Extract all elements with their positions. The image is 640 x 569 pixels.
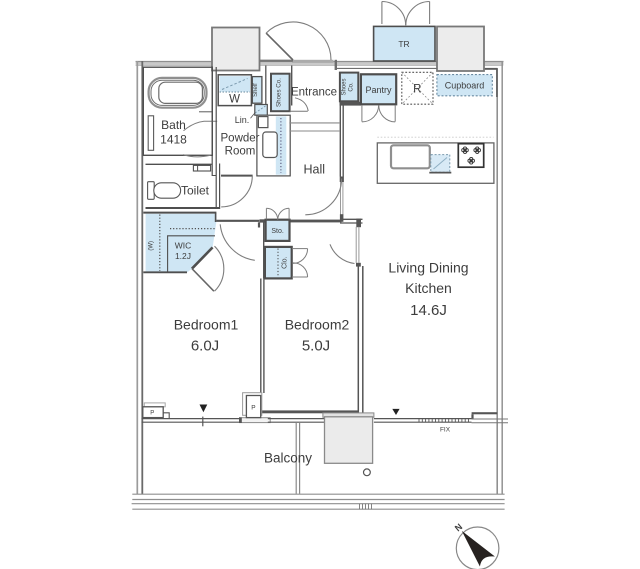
svg-text:Kitchen: Kitchen [405, 280, 452, 296]
svg-text:1.2J: 1.2J [175, 251, 191, 261]
svg-text:Cupboard: Cupboard [445, 81, 485, 91]
svg-text:Shoes: Shoes [342, 78, 348, 95]
svg-text:W: W [229, 93, 240, 105]
svg-text:R: R [413, 84, 421, 96]
svg-text:Entrance: Entrance [291, 87, 337, 99]
svg-text:6.0J: 6.0J [191, 338, 219, 355]
svg-text:WIC: WIC [175, 241, 192, 251]
svg-text:P: P [251, 405, 255, 412]
svg-text:5.0J: 5.0J [302, 338, 330, 355]
svg-text:Lin.: Lin. [235, 115, 250, 125]
svg-text:Shoes Co.: Shoes Co. [276, 78, 283, 107]
svg-text:TR: TR [398, 39, 409, 49]
svg-text:Clo.: Clo. [282, 256, 289, 269]
svg-text:Pantry: Pantry [365, 85, 392, 95]
svg-text:Living Dining: Living Dining [388, 260, 468, 276]
svg-text:Co.: Co. [349, 82, 355, 92]
svg-text:1418: 1418 [160, 133, 187, 147]
svg-text:(W): (W) [149, 241, 155, 251]
svg-text:Room: Room [225, 146, 256, 158]
svg-text:FIX: FIX [440, 427, 451, 434]
svg-text:Balcony: Balcony [264, 451, 312, 466]
svg-text:14.6J: 14.6J [410, 302, 447, 319]
svg-text:Bedroom1: Bedroom1 [174, 317, 239, 333]
svg-text:Shelf: Shelf [253, 83, 259, 97]
svg-text:Powder: Powder [221, 133, 260, 145]
svg-text:Toilet: Toilet [181, 184, 210, 198]
svg-text:Hall: Hall [304, 163, 326, 177]
svg-text:Bedroom2: Bedroom2 [285, 317, 350, 333]
svg-text:P: P [150, 410, 154, 416]
svg-text:Bath: Bath [161, 118, 186, 132]
svg-text:Sto.: Sto. [271, 228, 284, 235]
